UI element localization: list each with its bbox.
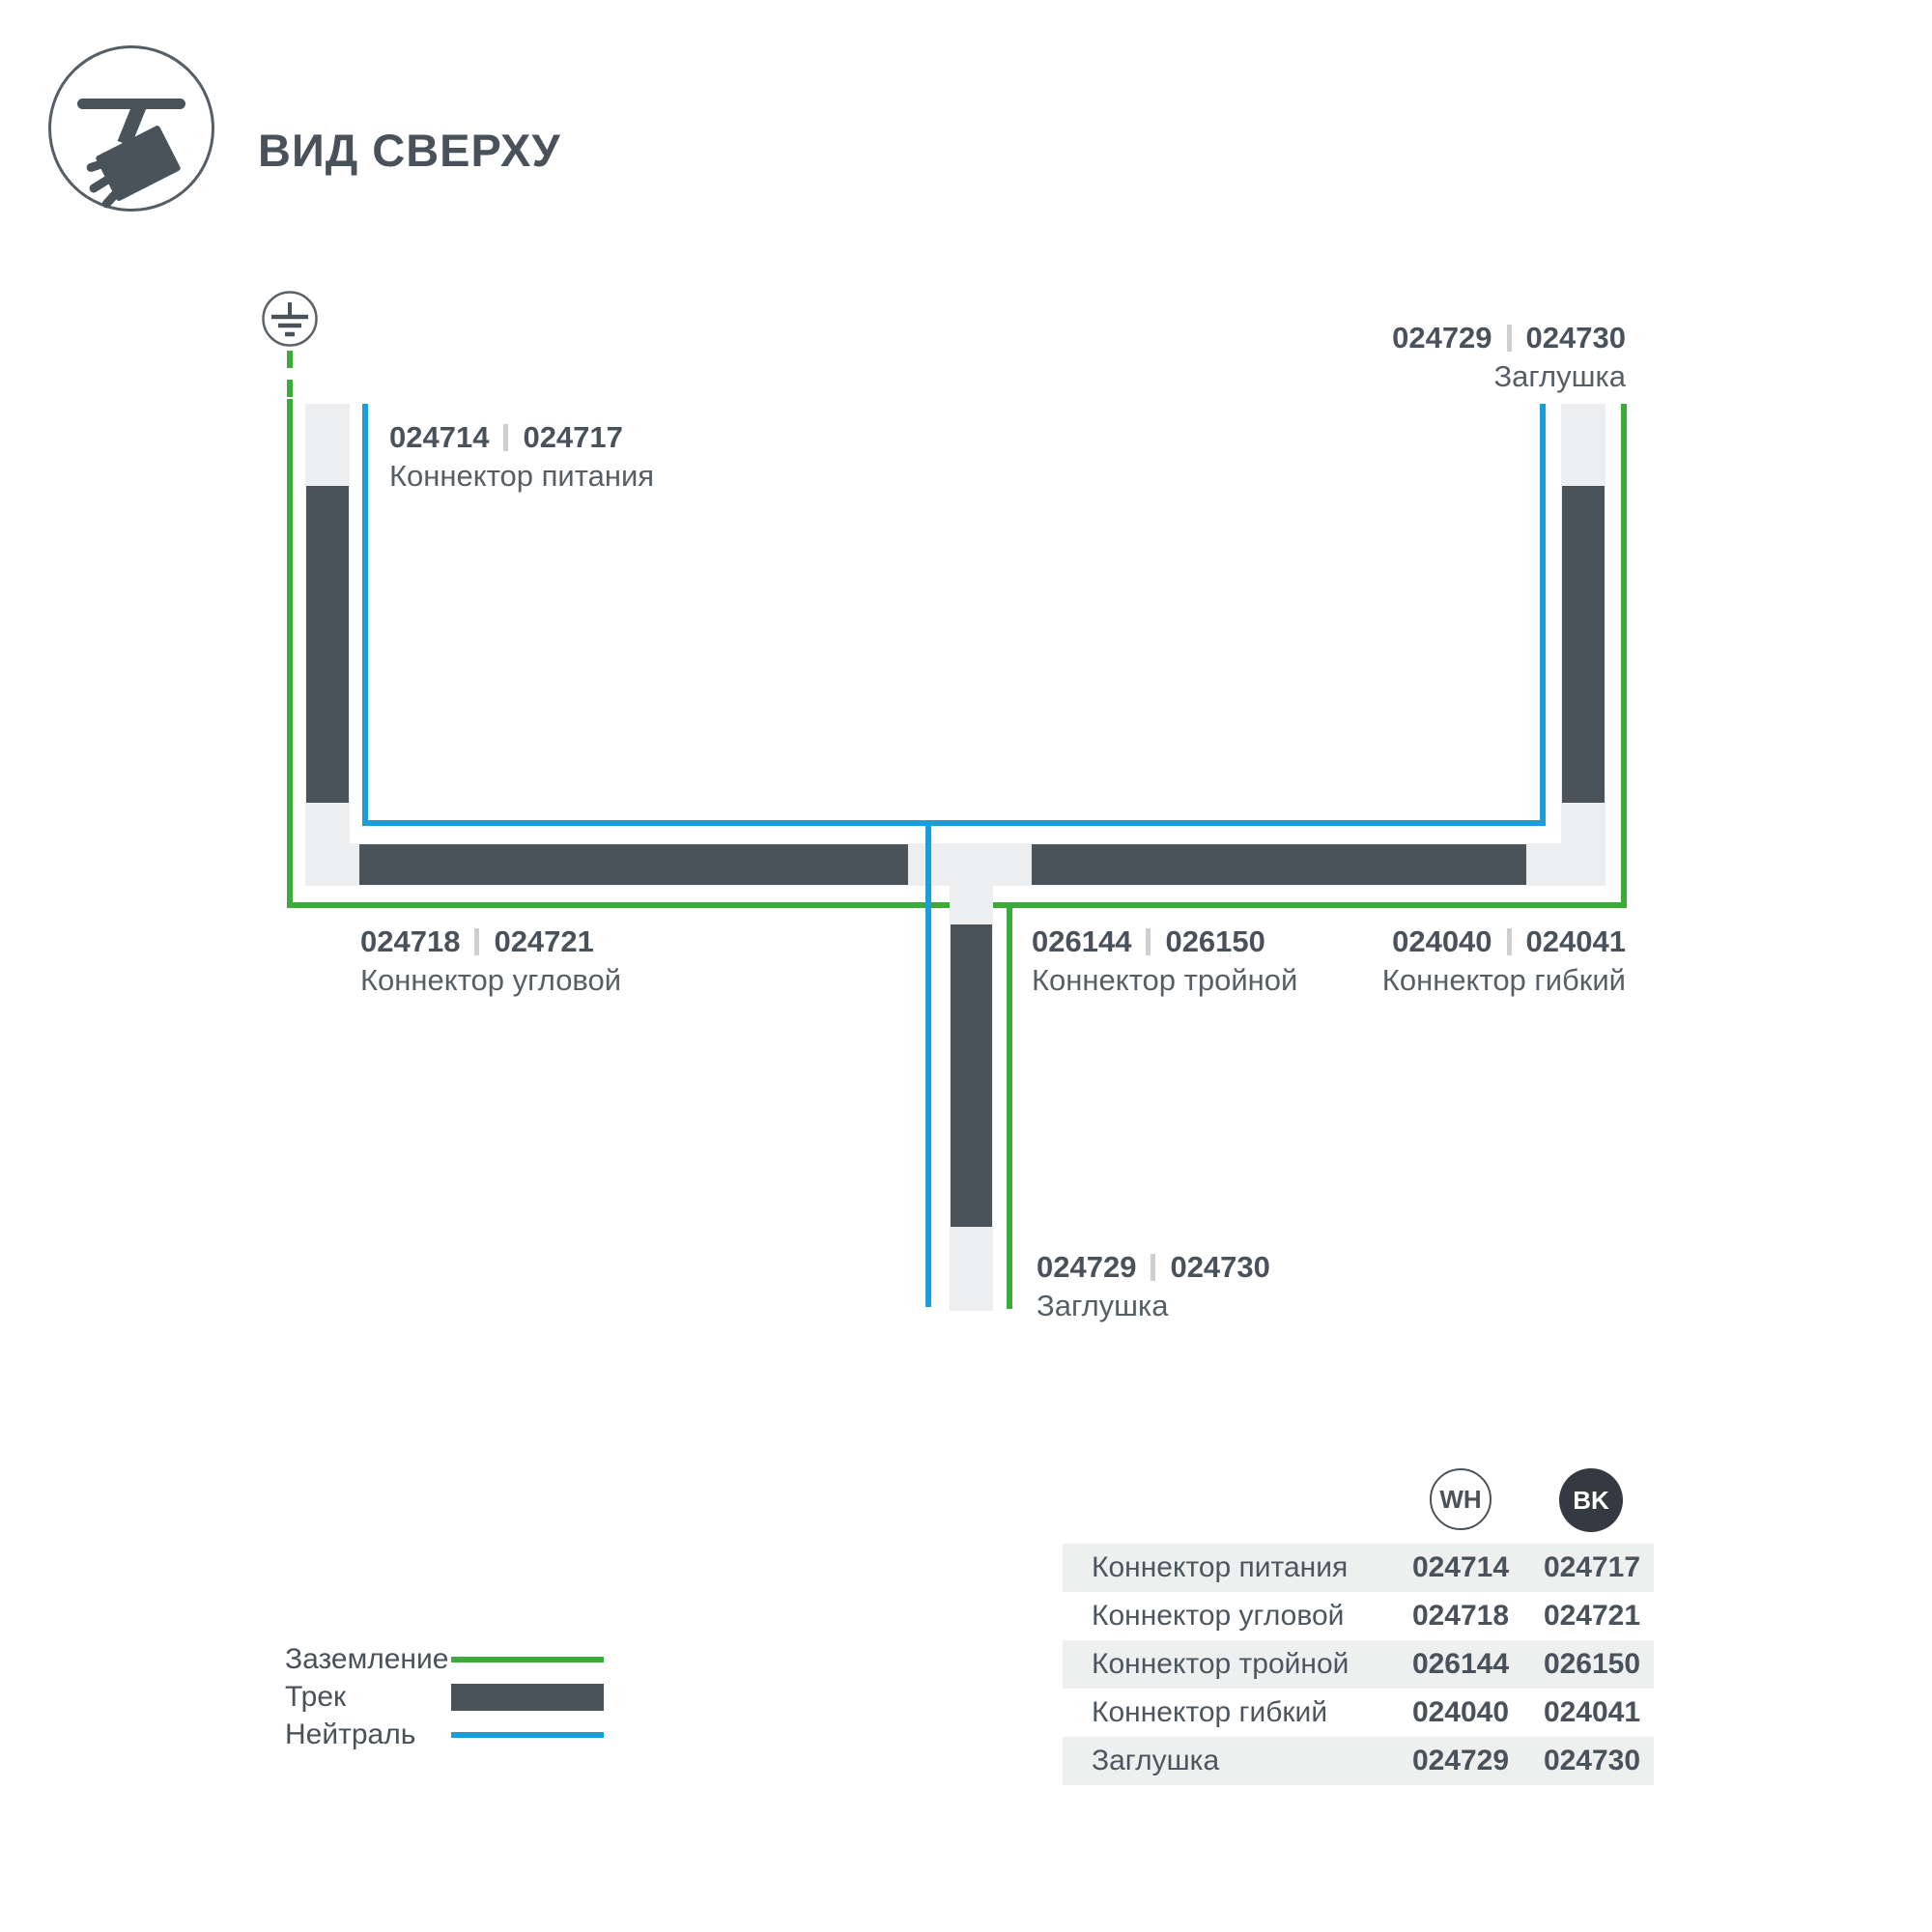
connector-name: Коннектор питания: [389, 460, 654, 492]
article-wh: 024729: [1392, 322, 1492, 354]
table-row: Коннектор гибкий 024040 024041: [1063, 1689, 1654, 1737]
legend-row-neutral: Нейтраль: [285, 1716, 604, 1753]
neutral-line-swatch: [451, 1732, 604, 1738]
separator: [1146, 928, 1151, 955]
part-name: Коннектор тройной: [1063, 1648, 1391, 1681]
label-triple-connector: 026144 026150 Коннектор тройной: [1032, 925, 1297, 996]
legend-row-ground: Заземление: [285, 1640, 604, 1678]
legend-row-track: Трек: [285, 1678, 604, 1716]
track-bar-swatch: [451, 1684, 604, 1711]
connector-name: Коннектор тройной: [1032, 964, 1297, 996]
article-bk: 024721: [494, 925, 593, 957]
table-row: Коннектор тройной 026144 026150: [1063, 1640, 1654, 1689]
legend-label: Трек: [285, 1681, 451, 1714]
bk-color-badge: BK: [1559, 1468, 1623, 1532]
part-bk-code: 024041: [1530, 1696, 1654, 1729]
article-bk: 024730: [1170, 1251, 1269, 1283]
legend: Заземление Трек Нейтраль: [285, 1640, 604, 1753]
part-wh-code: 024718: [1391, 1600, 1530, 1633]
article-wh: 024729: [1037, 1251, 1136, 1283]
ground-symbol-icon: [261, 290, 319, 348]
part-name: Коннектор питания: [1063, 1551, 1391, 1584]
part-bk-code: 024721: [1530, 1600, 1654, 1633]
part-name: Заглушка: [1063, 1745, 1391, 1777]
separator: [474, 928, 479, 955]
page: ВИД СВЕРХУ: [0, 0, 1932, 1932]
connector-name: Коннектор гибкий: [1382, 964, 1626, 996]
wh-color-badge: WH: [1430, 1468, 1492, 1530]
article-numbers: 024714 024717: [389, 421, 654, 453]
legend-label: Нейтраль: [285, 1719, 451, 1751]
article-numbers: 024729 024730: [1392, 322, 1626, 354]
parts-table-rows: Коннектор питания 024714 024717 Коннекто…: [1063, 1544, 1654, 1785]
label-flexible-connector: 024040 024041 Коннектор гибкий: [1382, 925, 1626, 996]
part-name: Коннектор гибкий: [1063, 1696, 1391, 1729]
track-diagram: [0, 0, 1932, 1449]
separator: [503, 424, 508, 451]
part-wh-code: 024714: [1391, 1551, 1530, 1584]
label-end-cap-bottom: 024729 024730 Заглушка: [1037, 1251, 1270, 1321]
table-row: Коннектор питания 024714 024717: [1063, 1544, 1654, 1592]
part-name: Коннектор угловой: [1063, 1600, 1391, 1633]
part-wh-code: 026144: [1391, 1648, 1530, 1681]
label-corner-connector: 024718 024721 Коннектор угловой: [360, 925, 621, 996]
table-row: Коннектор угловой 024718 024721: [1063, 1592, 1654, 1640]
article-numbers: 026144 026150: [1032, 925, 1297, 957]
part-bk-code: 024730: [1530, 1745, 1654, 1777]
part-wh-code: 024729: [1391, 1745, 1530, 1777]
part-bk-code: 026150: [1530, 1648, 1654, 1681]
article-wh: 024718: [360, 925, 460, 957]
label-power-connector: 024714 024717 Коннектор питания: [389, 421, 654, 492]
article-bk: 024041: [1526, 925, 1626, 957]
article-wh: 024040: [1392, 925, 1492, 957]
article-bk: 024730: [1526, 322, 1626, 354]
part-wh-code: 024040: [1391, 1696, 1530, 1729]
table-row: Заглушка 024729 024730: [1063, 1737, 1654, 1785]
ground-line-swatch: [451, 1657, 604, 1662]
article-bk: 024717: [523, 421, 622, 453]
separator: [1507, 928, 1512, 955]
article-wh: 026144: [1032, 925, 1131, 957]
article-wh: 024714: [389, 421, 489, 453]
article-numbers: 024718 024721: [360, 925, 621, 957]
article-bk: 026150: [1165, 925, 1264, 957]
separator: [1151, 1254, 1155, 1281]
article-numbers: 024729 024730: [1037, 1251, 1270, 1283]
legend-label: Заземление: [285, 1643, 451, 1676]
connector-name: Заглушка: [1037, 1290, 1270, 1321]
connector-name: Заглушка: [1493, 360, 1626, 392]
article-numbers: 024040 024041: [1392, 925, 1626, 957]
label-end-cap-top: 024729 024730 Заглушка: [1392, 322, 1626, 392]
separator: [1507, 325, 1512, 352]
part-bk-code: 024717: [1530, 1551, 1654, 1584]
connector-name: Коннектор угловой: [360, 964, 621, 996]
